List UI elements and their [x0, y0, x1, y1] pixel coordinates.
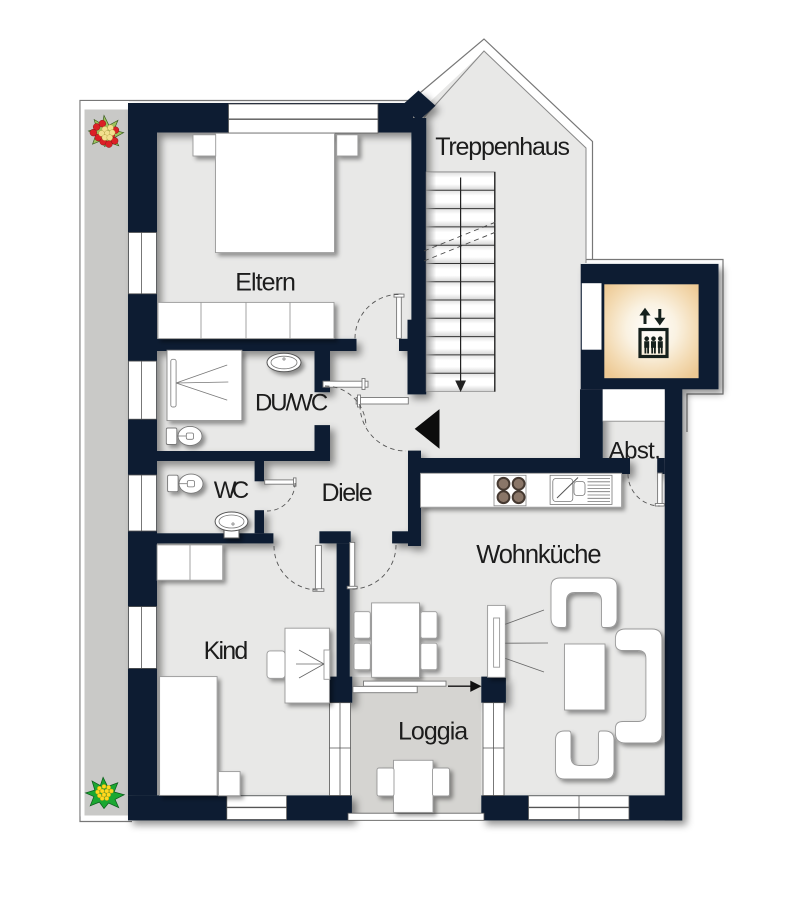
svg-text:Loggia: Loggia: [398, 717, 468, 745]
svg-text:Treppenhaus: Treppenhaus: [435, 133, 570, 161]
svg-text:Wohnküche: Wohnküche: [476, 541, 601, 569]
svg-text:WC: WC: [214, 477, 249, 504]
svg-text:DU/WC: DU/WC: [255, 389, 328, 416]
svg-text:Kind: Kind: [204, 637, 249, 665]
svg-text:Diele: Diele: [322, 479, 373, 507]
svg-text:Eltern: Eltern: [235, 268, 296, 296]
svg-text:Abst.: Abst.: [609, 437, 661, 464]
